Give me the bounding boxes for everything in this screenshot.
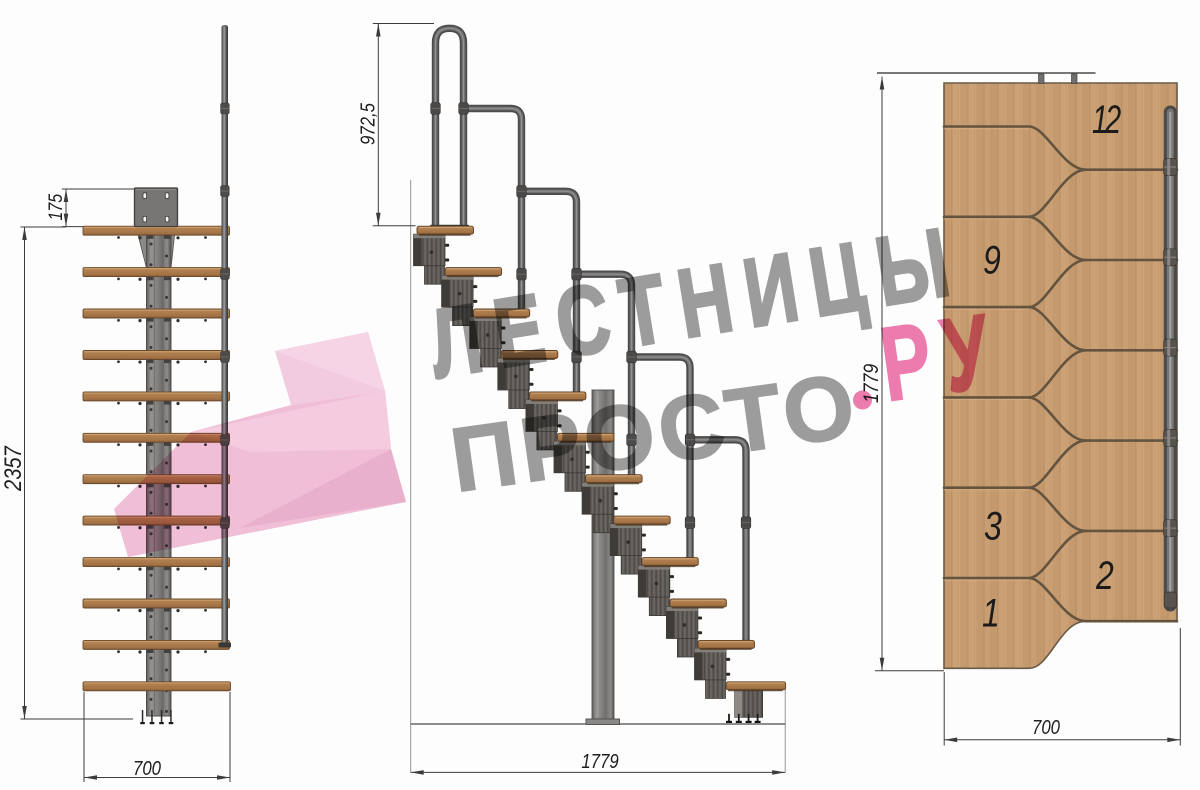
svg-text:РУ: РУ [874,291,1011,424]
